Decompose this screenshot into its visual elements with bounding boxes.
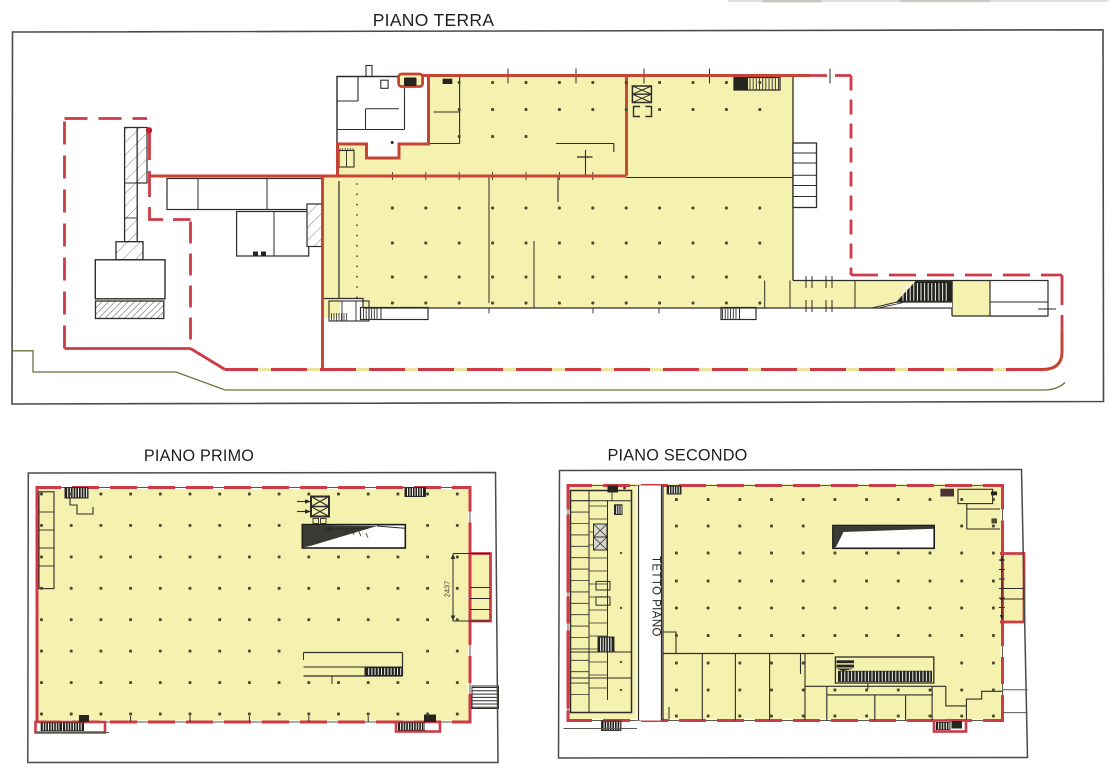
svg-text:PIANO SECONDO: PIANO SECONDO xyxy=(607,446,747,464)
svg-text:PIANO PRIMO: PIANO PRIMO xyxy=(144,447,254,465)
svg-text:2437: 2437 xyxy=(443,581,452,598)
svg-text:TETTO PIANO: TETTO PIANO xyxy=(650,556,662,637)
svg-text:PIANO TERRA: PIANO TERRA xyxy=(373,10,495,30)
